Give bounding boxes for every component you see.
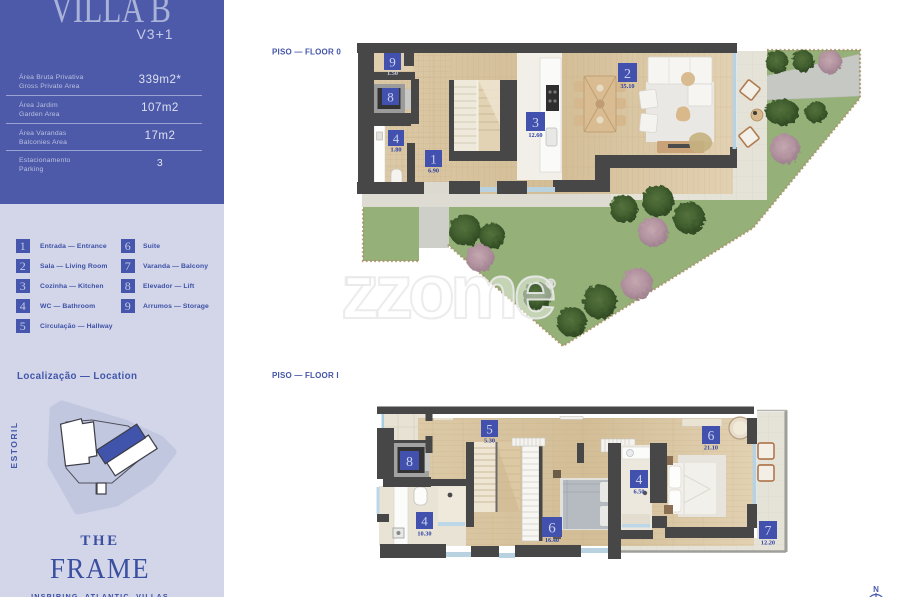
svg-text:35.10: 35.10 [620, 83, 634, 90]
svg-text:12.20: 12.20 [761, 540, 775, 547]
svg-text:16.40: 16.40 [545, 537, 559, 544]
svg-text:2: 2 [624, 67, 631, 82]
svg-text:4: 4 [421, 514, 428, 529]
svg-text:3: 3 [532, 116, 539, 131]
svg-text:8: 8 [406, 455, 413, 470]
svg-text:4: 4 [393, 132, 400, 146]
svg-text:7: 7 [765, 523, 772, 538]
svg-text:5: 5 [486, 422, 493, 437]
svg-text:8: 8 [387, 90, 394, 105]
svg-text:12.60: 12.60 [528, 132, 542, 139]
svg-text:PISO — FLOOR 0: PISO — FLOOR 0 [272, 47, 341, 56]
svg-text:6: 6 [548, 521, 556, 537]
svg-text:5.30: 5.30 [484, 438, 495, 445]
svg-text:4: 4 [636, 472, 643, 487]
svg-text:6.90: 6.90 [428, 168, 439, 175]
svg-text:zzome: zzome [341, 249, 555, 335]
svg-text:10.30: 10.30 [417, 531, 431, 538]
svg-text:1: 1 [430, 152, 437, 167]
svg-text:9: 9 [389, 55, 396, 70]
svg-text:6.50: 6.50 [633, 489, 644, 496]
svg-text:PISO — FLOOR I: PISO — FLOOR I [272, 371, 339, 380]
svg-text:6: 6 [708, 428, 715, 443]
svg-text:1.50: 1.50 [387, 70, 398, 77]
svg-text:1.80: 1.80 [390, 147, 401, 154]
svg-text:N: N [873, 585, 879, 594]
svg-text:21.10: 21.10 [704, 445, 718, 452]
svg-text:®: ® [546, 276, 556, 291]
